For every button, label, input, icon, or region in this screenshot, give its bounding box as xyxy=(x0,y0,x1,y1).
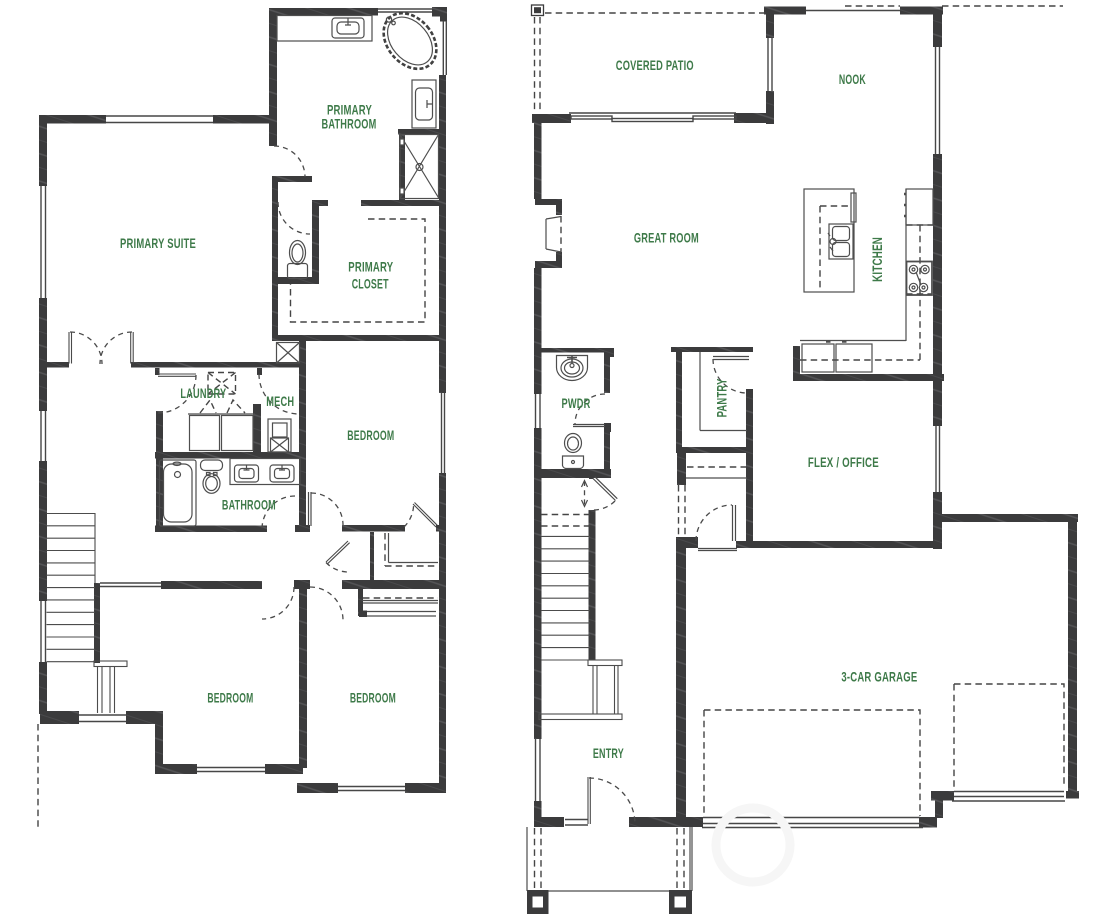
svg-text:BATHROOM: BATHROOM xyxy=(222,497,276,513)
svg-text:BATHROOM: BATHROOM xyxy=(322,116,377,132)
svg-text:NOOK: NOOK xyxy=(839,71,866,87)
svg-text:BEDROOM: BEDROOM xyxy=(350,690,396,706)
svg-text:3-CAR GARAGE: 3-CAR GARAGE xyxy=(841,668,917,684)
svg-text:PRIMARY SUITE: PRIMARY SUITE xyxy=(120,235,196,251)
svg-text:LAUNDRY: LAUNDRY xyxy=(180,385,226,401)
svg-text:GREAT ROOM: GREAT ROOM xyxy=(634,230,699,246)
svg-text:KITCHEN: KITCHEN xyxy=(869,237,885,282)
svg-text:BEDROOM: BEDROOM xyxy=(207,690,253,706)
svg-text:BEDROOM: BEDROOM xyxy=(347,427,394,443)
svg-text:CLOSET: CLOSET xyxy=(352,276,389,292)
svg-text:PANTRY: PANTRY xyxy=(714,378,730,417)
svg-text:MECH: MECH xyxy=(266,393,294,409)
svg-text:COVERED PATIO: COVERED PATIO xyxy=(616,57,694,73)
svg-text:FLEX / OFFICE: FLEX / OFFICE xyxy=(808,454,879,470)
svg-text:ENTRY: ENTRY xyxy=(593,745,624,761)
svg-text:PWDR: PWDR xyxy=(562,395,591,411)
svg-text:PRIMARY: PRIMARY xyxy=(348,258,393,274)
